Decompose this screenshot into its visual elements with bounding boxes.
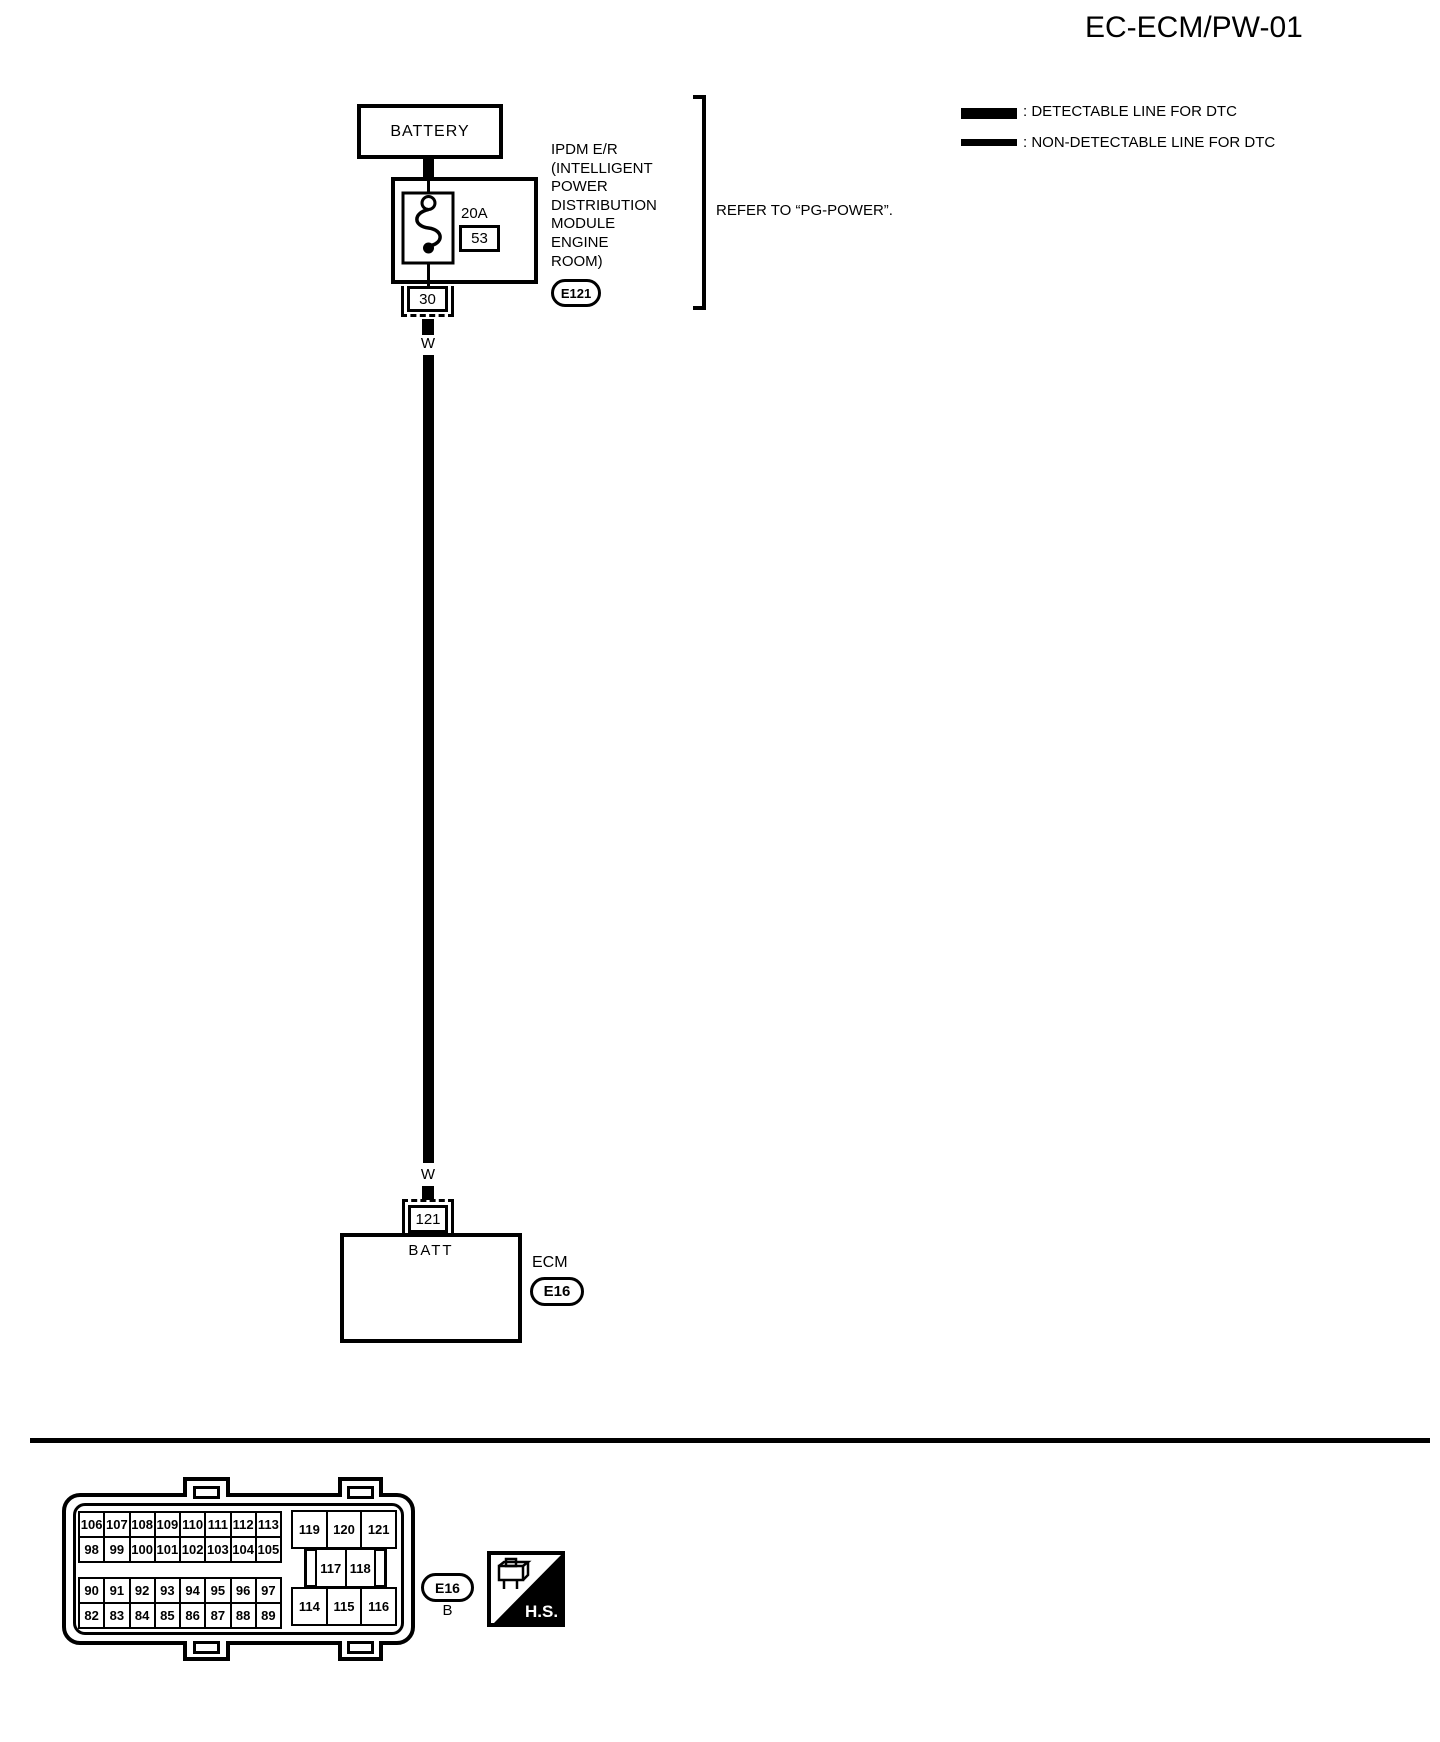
- pin-cell: 97: [257, 1579, 280, 1602]
- hs-label: H.S.: [525, 1602, 558, 1621]
- group-bracket: [693, 95, 706, 310]
- pin-cell: 89: [257, 1604, 280, 1627]
- ipdm-line: (INTELLIGENT: [551, 160, 657, 179]
- pin-cell: 108: [131, 1513, 154, 1536]
- pin-cell: 91: [105, 1579, 128, 1602]
- connector-tab-inner: [193, 1486, 220, 1499]
- refer-note: REFER TO “PG-POWER”.: [716, 202, 893, 219]
- ecm-box: BATT: [340, 1233, 522, 1343]
- pin-cell: 118: [347, 1550, 375, 1586]
- pin-grid-right-middle: 117 118: [315, 1548, 376, 1588]
- pin-cell: 85: [156, 1604, 179, 1627]
- pin-cell: 116: [362, 1589, 395, 1624]
- connector-view-color: B: [421, 1602, 474, 1619]
- pin-cell: 92: [131, 1579, 154, 1602]
- pin-cell: 120: [328, 1512, 361, 1547]
- legend-thick-line-sample: [961, 108, 1017, 119]
- ipdm-line: IPDM E/R: [551, 141, 657, 160]
- pin-cell: 110: [181, 1513, 204, 1536]
- pin-cell: 96: [232, 1579, 255, 1602]
- pin-30-box: 30: [407, 286, 448, 312]
- pin-cell: 119: [293, 1512, 326, 1547]
- wire-main: [423, 355, 434, 1163]
- pin-grid-right-bottom: 114 115 116: [291, 1587, 397, 1626]
- wire-color-top: W: [408, 335, 448, 352]
- pin-cell: 104: [232, 1538, 255, 1561]
- ecm-terminal-label: BATT: [344, 1242, 518, 1259]
- wire-stub-bottom: [422, 1186, 434, 1200]
- connector-tab-inner: [347, 1486, 374, 1499]
- wire-stub-battery: [423, 157, 434, 179]
- pin-grid-top-left: 106 107 108 109 110 111 112 113 98 99 10…: [78, 1511, 282, 1563]
- ecm-connector-code: E16: [530, 1277, 584, 1306]
- pin-cell: 95: [206, 1579, 229, 1602]
- pin-cell: 102: [181, 1538, 204, 1561]
- connector-view-code: E16: [421, 1573, 474, 1602]
- ipdm-description: IPDM E/R (INTELLIGENT POWER DISTRIBUTION…: [551, 141, 657, 271]
- wire-stub-top: [422, 319, 434, 335]
- pin-cell: 105: [257, 1538, 280, 1561]
- battery-label: BATTERY: [390, 123, 469, 141]
- fuse-number-box: 53: [459, 225, 500, 252]
- ecm-name-label: ECM: [532, 1254, 568, 1272]
- battery-box: BATTERY: [357, 104, 503, 159]
- page-title: EC-ECM/PW-01: [1085, 11, 1303, 45]
- connector-tab-inner: [347, 1641, 374, 1654]
- legend-thin-line-sample: [961, 139, 1017, 146]
- pin-grid-right-top: 119 120 121: [291, 1510, 397, 1549]
- pin-cell: 107: [105, 1513, 128, 1536]
- pin-cell: 88: [232, 1604, 255, 1627]
- pin-cell: 90: [80, 1579, 103, 1602]
- pin-cell: 117: [317, 1550, 345, 1586]
- pin-cell: 84: [131, 1604, 154, 1627]
- wire-color-bottom: W: [408, 1166, 448, 1183]
- pin-cell: 87: [206, 1604, 229, 1627]
- pin-cell: 98: [80, 1538, 103, 1561]
- pin-cell: 82: [80, 1604, 103, 1627]
- section-separator: [30, 1438, 1430, 1443]
- pin-cell: 111: [206, 1513, 229, 1536]
- ipdm-line: DISTRIBUTION: [551, 197, 657, 216]
- pin-cell: 101: [156, 1538, 179, 1561]
- ipdm-line: POWER: [551, 178, 657, 197]
- pin-cell: 121: [362, 1512, 395, 1547]
- ipdm-line: ENGINE: [551, 234, 657, 253]
- pin-grid-bottom-left: 90 91 92 93 94 95 96 97 82 83 84 85 86 8…: [78, 1577, 282, 1629]
- pin-cell: 106: [80, 1513, 103, 1536]
- pin-121-box: 121: [408, 1205, 448, 1233]
- legend-non-detectable-label: : NON-DETECTABLE LINE FOR DTC: [1023, 134, 1275, 151]
- ipdm-line: MODULE: [551, 215, 657, 234]
- ipdm-connector-code: E121: [551, 279, 601, 307]
- pin-cell: 113: [257, 1513, 280, 1536]
- pin-cell: 109: [156, 1513, 179, 1536]
- pin-cell: 100: [131, 1538, 154, 1561]
- ipdm-line: ROOM): [551, 253, 657, 272]
- pin-cell: 115: [328, 1589, 361, 1624]
- pin-cell: 86: [181, 1604, 204, 1627]
- fuse-rating-label: 20A: [461, 205, 488, 222]
- hs-icon: H.S.: [487, 1551, 565, 1627]
- pin-cell: 103: [206, 1538, 229, 1561]
- pin-cell: 94: [181, 1579, 204, 1602]
- fuse-icon: [400, 188, 458, 268]
- legend-detectable-label: : DETECTABLE LINE FOR DTC: [1023, 103, 1237, 120]
- pin-cell: 93: [156, 1579, 179, 1602]
- pin-cell: 83: [105, 1604, 128, 1627]
- connector-tab-inner: [193, 1641, 220, 1654]
- pin-cell: 114: [293, 1589, 326, 1624]
- pin-cell: 112: [232, 1513, 255, 1536]
- pin-cell: 99: [105, 1538, 128, 1561]
- wiring-diagram-page: EC-ECM/PW-01 : DETECTABLE LINE FOR DTC :…: [0, 0, 1440, 1742]
